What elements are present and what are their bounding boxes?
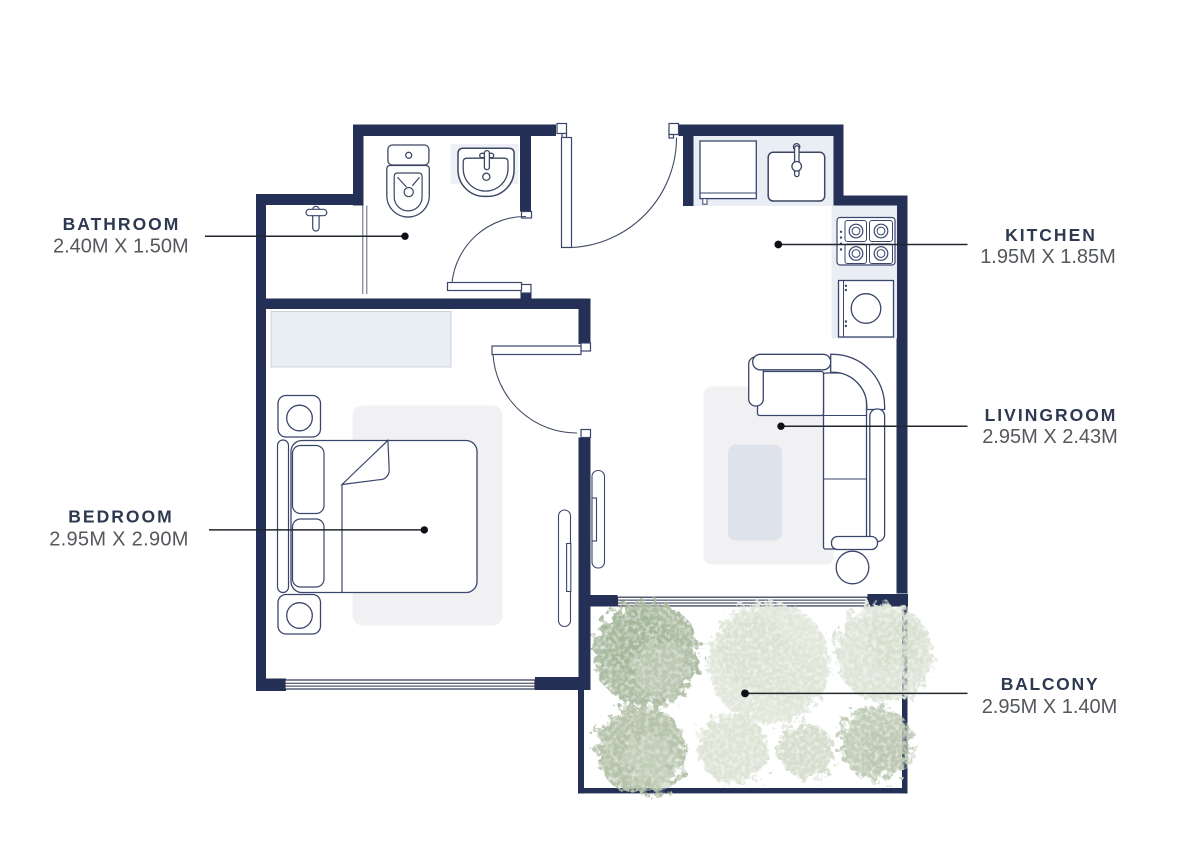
svg-text:KITCHEN: KITCHEN <box>1005 225 1097 245</box>
svg-text:1.95M X 1.85M: 1.95M X 1.85M <box>980 246 1116 268</box>
svg-text:2.95M X 1.40M: 2.95M X 1.40M <box>982 696 1118 718</box>
svg-text:2.95M X 2.90M: 2.95M X 2.90M <box>49 529 189 551</box>
svg-text:2.95M X 2.43M: 2.95M X 2.43M <box>982 426 1118 448</box>
svg-text:2.40M X 1.50M: 2.40M X 1.50M <box>53 236 189 258</box>
svg-text:LIVINGROOM: LIVINGROOM <box>985 405 1118 425</box>
svg-text:BALCONY: BALCONY <box>1001 674 1099 694</box>
svg-text:BEDROOM: BEDROOM <box>68 507 173 527</box>
svg-text:BATHROOM: BATHROOM <box>63 214 181 234</box>
